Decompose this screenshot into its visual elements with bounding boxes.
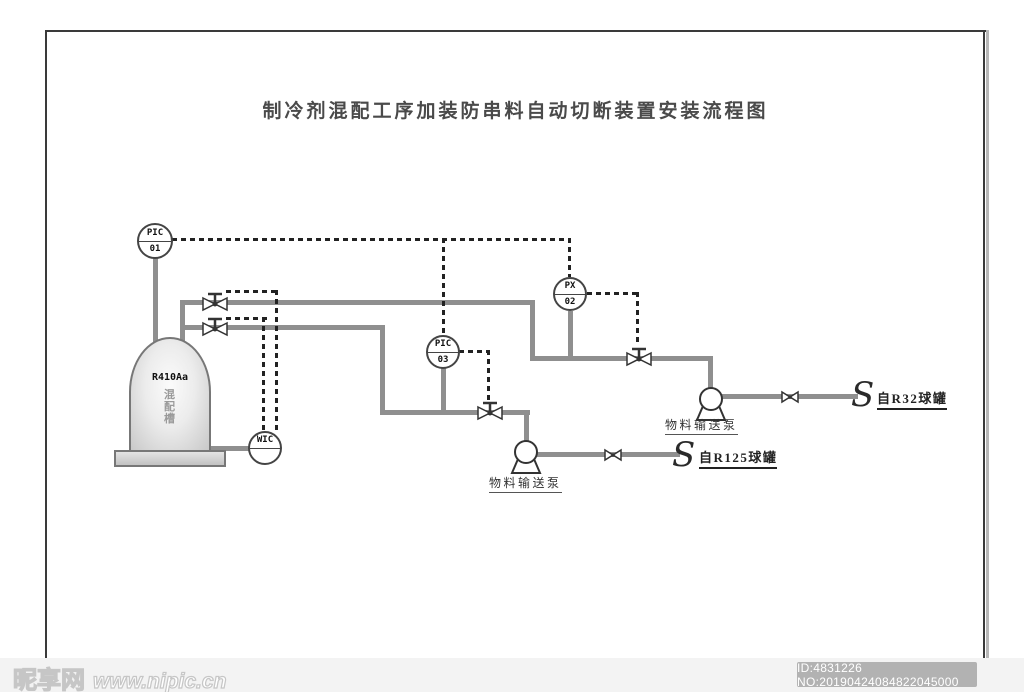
diagram-title: 制冷剂混配工序加装防串料自动切断装置安装流程图 xyxy=(45,96,986,123)
instrument-pic01-num: 01 xyxy=(139,242,171,258)
control-valve-upper-tank-icon xyxy=(202,291,228,311)
instrument-pic03-tag: PIC xyxy=(428,337,458,353)
instrument-pic03-num: 03 xyxy=(428,353,458,368)
line-break-symbol-r32: S xyxy=(851,378,874,412)
mixing-tank-name: 混配槽 xyxy=(164,389,177,425)
signal-valve2-wic-h xyxy=(226,317,267,320)
pipe-r32-run xyxy=(530,356,713,361)
signal-drop-px02 xyxy=(568,238,571,277)
control-valve-r125-icon xyxy=(477,400,503,420)
watermark-logo: 昵享网 www.nipic.cn xyxy=(13,660,226,692)
pipe-lower-drop xyxy=(380,327,385,413)
instrument-wic: WIC xyxy=(248,431,282,465)
pipe-pic03-stem xyxy=(441,368,446,413)
instrument-px02: PX 02 xyxy=(553,277,587,311)
pipe-pump2-riser xyxy=(524,410,529,441)
instrument-pic01-tag: PIC xyxy=(139,225,171,242)
pump-lower-icon xyxy=(504,439,548,475)
pipe-upper-horizontal xyxy=(180,300,535,305)
watermark-site-url: www.nipic.cn xyxy=(93,670,226,692)
pump-lower-label: 物料输送泵 xyxy=(489,474,562,493)
page-border-right-shadow xyxy=(986,30,989,692)
page-border-left xyxy=(45,30,47,692)
page-border-right xyxy=(983,30,985,692)
signal-px02-valve-h xyxy=(587,292,639,295)
control-valve-r32-icon xyxy=(626,346,652,366)
signal-valve1-wic-h xyxy=(226,290,278,293)
signal-pic03-valve-v xyxy=(487,350,490,400)
page-border-top xyxy=(45,30,986,32)
instrument-px02-num: 02 xyxy=(555,295,585,310)
source-label-r125: 自R125球罐 xyxy=(699,447,777,469)
pipe-pump1-riser xyxy=(708,356,713,390)
pipe-px02-stem xyxy=(568,311,573,359)
instrument-wic-num xyxy=(250,449,280,464)
mixing-tank-code: R410Aa xyxy=(129,372,211,383)
watermark-site-name: 昵享网 xyxy=(13,660,85,692)
signal-drop-pic03 xyxy=(442,238,445,335)
instrument-px02-tag: PX xyxy=(555,279,585,295)
signal-valve1-wic-v xyxy=(275,290,278,431)
pipe-r125-run xyxy=(380,410,530,415)
signal-valve2-wic-v xyxy=(262,317,265,431)
hand-valve-r32-icon xyxy=(781,391,799,403)
signal-px02-valve-v xyxy=(636,292,639,346)
mixing-tank-base xyxy=(114,450,226,467)
instrument-pic03: PIC 03 xyxy=(426,335,460,369)
signal-pic03-valve-h xyxy=(459,350,490,353)
line-break-symbol-r125: S xyxy=(672,438,695,472)
pump-upper-label: 物料输送泵 xyxy=(665,416,738,435)
source-label-r32: 自R32球罐 xyxy=(877,388,947,410)
hand-valve-r125-icon xyxy=(604,449,622,461)
control-valve-lower-tank-icon xyxy=(202,316,228,336)
instrument-wic-tag: WIC xyxy=(250,433,280,449)
diagram-page: 制冷剂混配工序加装防串料自动切断装置安装流程图 R410Aa 混配槽 PIC 0… xyxy=(0,0,1024,692)
pipe-upper-drop xyxy=(530,300,535,361)
watermark-id-badge: ID:4831226 NO:20190424084822045000 xyxy=(797,662,977,687)
signal-pic01-main xyxy=(172,238,570,241)
instrument-pic01: PIC 01 xyxy=(137,223,173,259)
pipe-pic01-stem xyxy=(153,258,158,342)
